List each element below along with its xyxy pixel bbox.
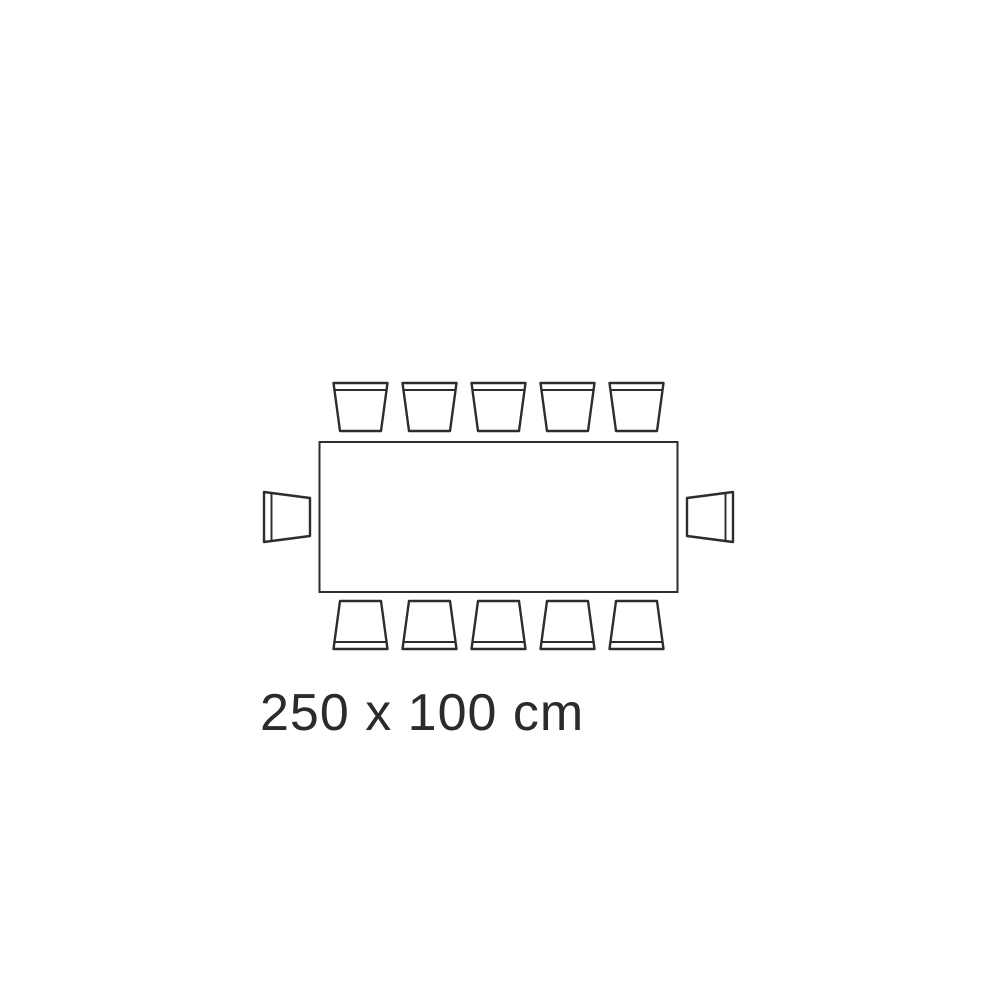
chair: [403, 383, 457, 431]
page: { "page": { "background_color": "#ffffff…: [0, 0, 1000, 1000]
table-top: [320, 442, 678, 592]
chair: [541, 383, 595, 431]
plan-canvas: [0, 0, 1000, 1000]
seating-plan-diagram: 250 x 100 cm: [0, 0, 1000, 1000]
chair: [472, 383, 526, 431]
chair: [687, 492, 733, 542]
chair: [610, 601, 664, 649]
dimensions-label: 250 x 100 cm: [260, 687, 584, 739]
chair: [472, 601, 526, 649]
chair: [541, 601, 595, 649]
chair: [264, 492, 310, 542]
chair: [403, 601, 457, 649]
chair: [610, 383, 664, 431]
chair: [334, 383, 388, 431]
chair: [334, 601, 388, 649]
